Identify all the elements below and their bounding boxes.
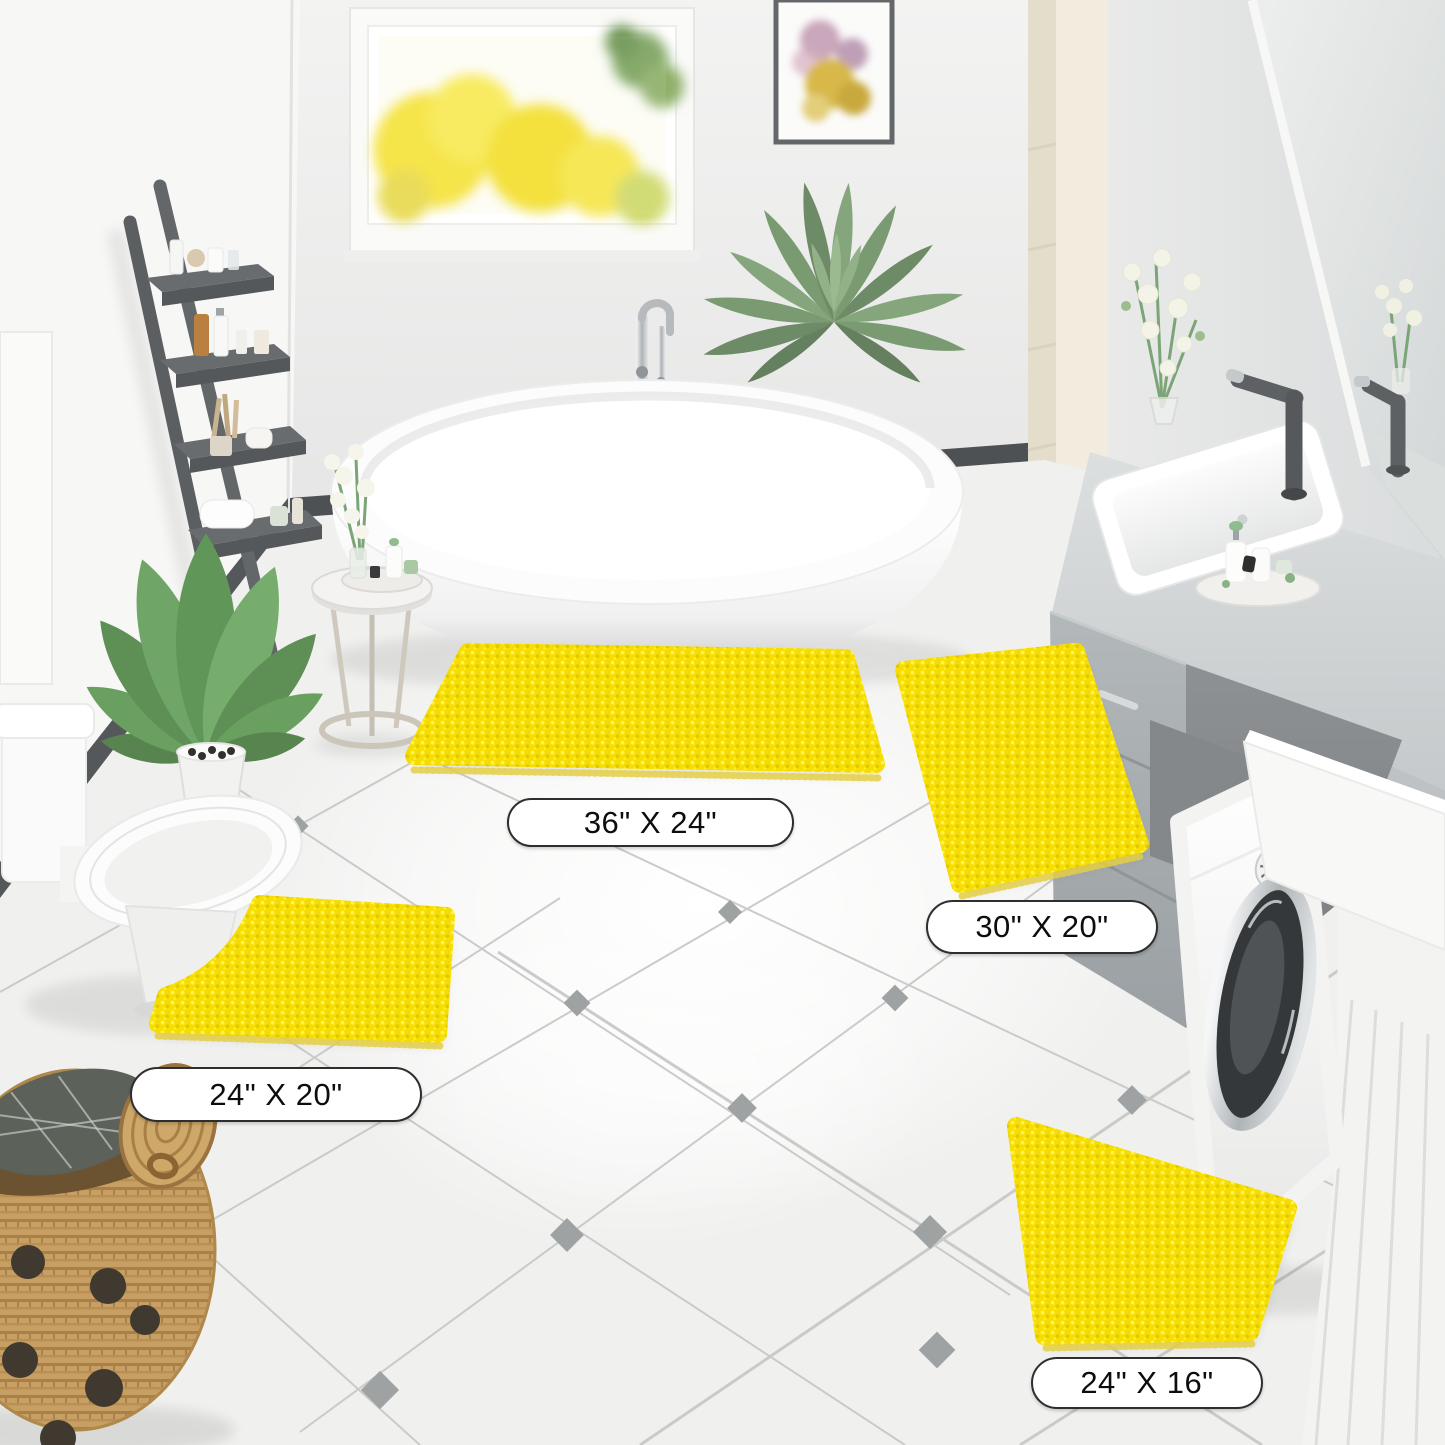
mat-size-label-24x20: 24" X 20" [130,1067,422,1122]
freestanding-bathtub [330,380,970,692]
mat-size-label-36x24: 36" X 24" [507,798,794,847]
wall-panel [0,332,52,684]
bath-mat-large [414,652,876,764]
bathroom-product-photo: 36" X 24" 30" X 20" 24" X 20" 24" X 16" [0,0,1445,1445]
mat-size-label-30x20: 30" X 20" [926,900,1158,954]
mat-size-label-24x16: 24" X 16" [1031,1357,1263,1409]
plant-pot [177,743,245,800]
scene-illustration [0,0,1445,1445]
toilet-tank-lid [0,704,94,738]
window-autumn-view [344,8,700,262]
window-sill [344,250,700,262]
wall-art [776,0,892,142]
